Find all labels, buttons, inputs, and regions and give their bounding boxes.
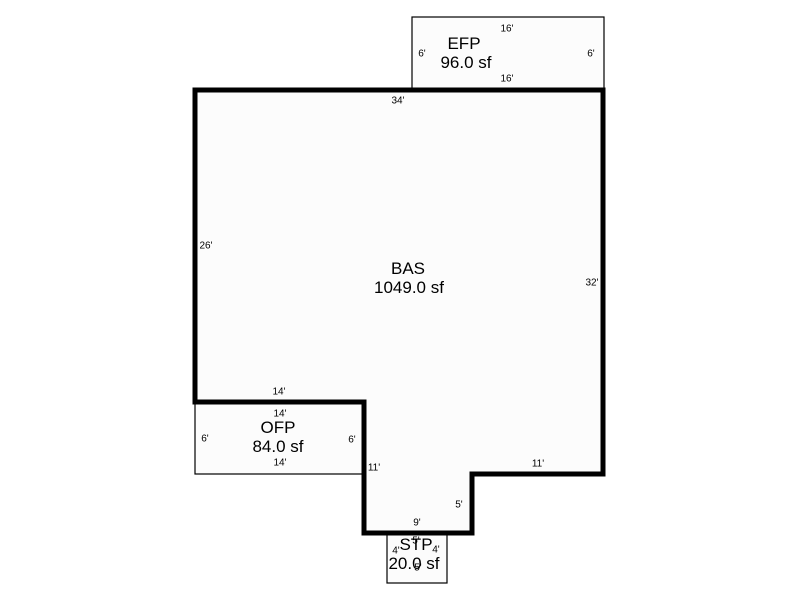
dim-bas-notch-left: 11' — [368, 463, 380, 474]
dim-bas-right: 32' — [585, 278, 598, 289]
dim-efp-left: 6' — [418, 49, 426, 60]
dim-ofp-top: 14' — [273, 409, 286, 420]
dim-bas-bottom: 9' — [413, 518, 421, 529]
dim-stp-top: 5' — [412, 536, 420, 547]
dim-ofp-right: 6' — [348, 435, 356, 446]
dim-bas-bottom-left: 14' — [272, 387, 285, 398]
dim-efp-top: 16' — [500, 24, 513, 35]
dim-efp-right: 6' — [587, 49, 595, 60]
ofp-area-label: 84.0 sf — [252, 437, 303, 456]
floor-plan-sketch: EFP96.0 sfBAS1049.0 sfOFP84.0 sfSTP20.0 … — [0, 0, 800, 600]
dim-efp-bottom: 16' — [500, 74, 513, 85]
bas-area-label: 1049.0 sf — [374, 278, 444, 297]
sketch-page: EFP96.0 sfBAS1049.0 sfOFP84.0 sfSTP20.0 … — [0, 0, 800, 600]
dim-stp-right: 4' — [432, 545, 440, 556]
dim-stp-left: 4' — [392, 546, 400, 557]
bas-code-label: BAS — [391, 259, 425, 278]
dim-ofp-bottom: 14' — [273, 458, 286, 469]
dim-stp-bottom: 5' — [414, 563, 422, 574]
efp-area-label: 96.0 sf — [440, 53, 491, 72]
dim-ofp-left: 6' — [201, 434, 209, 445]
efp-code-label: EFP — [447, 34, 480, 53]
dim-bas-step-down: 5' — [455, 500, 463, 511]
dim-bas-top: 34' — [391, 96, 404, 107]
dim-bas-step-right: 11' — [532, 459, 544, 470]
ofp-code-label: OFP — [261, 418, 296, 437]
dim-bas-left: 26' — [199, 241, 212, 252]
